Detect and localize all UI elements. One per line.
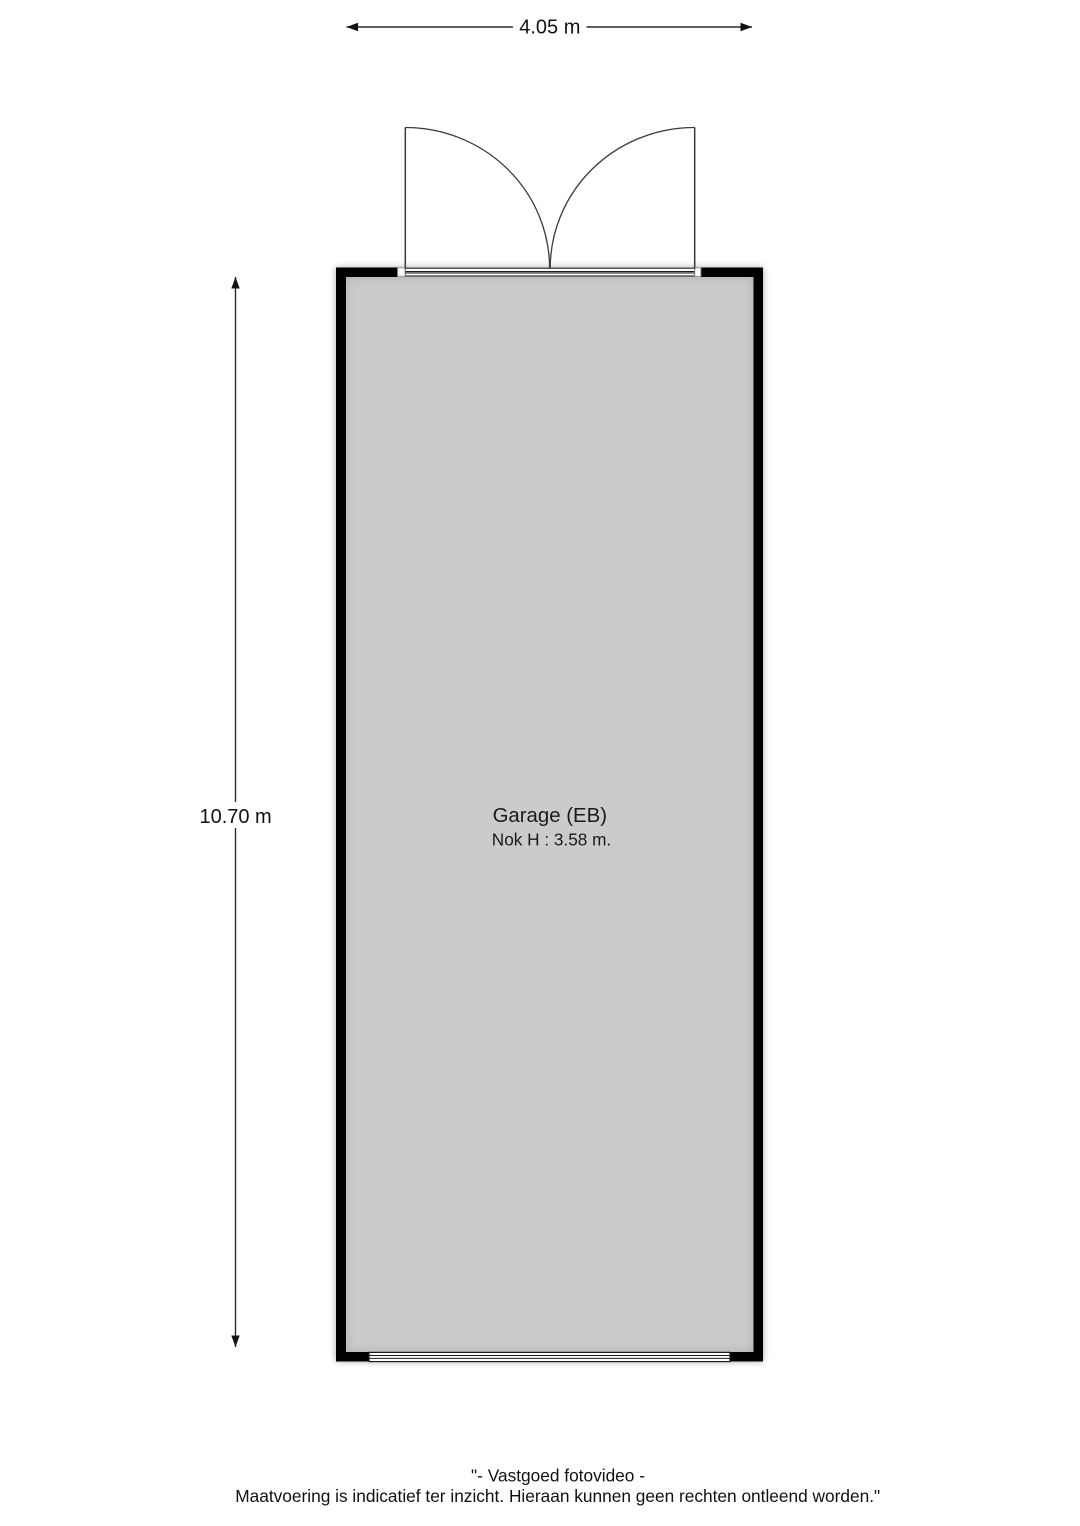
svg-text:10.70 m: 10.70 m xyxy=(199,806,271,828)
svg-text:4.05 m: 4.05 m xyxy=(519,17,580,39)
svg-text:"- Vastgoed fotovideo -: "- Vastgoed fotovideo - xyxy=(471,1465,645,1485)
svg-text:Garage (EB): Garage (EB) xyxy=(493,805,607,827)
svg-text:Nok H : 3.58 m.: Nok H : 3.58 m. xyxy=(492,830,611,850)
svg-text:Maatvoering is indicatief ter: Maatvoering is indicatief ter inzicht. H… xyxy=(235,1486,880,1506)
